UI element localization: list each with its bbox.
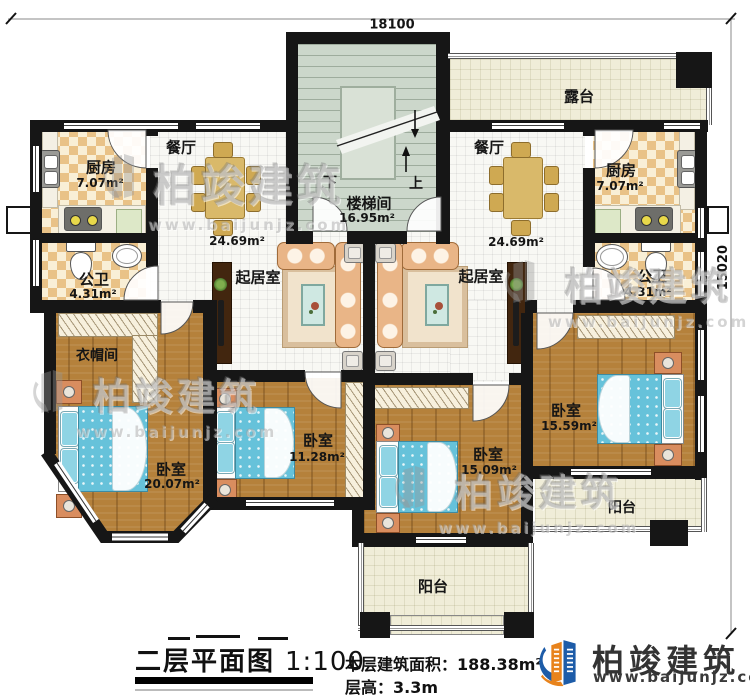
coffee-table-right [425, 284, 449, 326]
room-label-bedroom-master-left: 卧室 [156, 463, 186, 478]
wall [347, 231, 407, 244]
stair-up-label: 上 [409, 177, 423, 191]
window [571, 468, 651, 476]
room-label-bath-right: 公卫 [637, 270, 667, 285]
chair [511, 220, 531, 236]
room-label-terrace: 露台 [564, 90, 594, 105]
chair [246, 166, 261, 185]
end-table [375, 243, 396, 263]
room-label-bedroom-master-right: 卧室 [551, 404, 581, 419]
room-area-dining-left: 24.69m² [209, 235, 265, 247]
room-area-bath-left: 4.31m² [69, 288, 116, 300]
kitchen-right-stove [635, 207, 673, 231]
coffee-table-left [301, 284, 325, 326]
window [697, 252, 705, 296]
room-label-balcony-center: 阳台 [418, 580, 448, 595]
wall [436, 32, 450, 244]
basin-right [596, 244, 628, 270]
floor-height-text: 层高：3.3m [345, 674, 438, 698]
wall [583, 243, 595, 267]
brand-logo [534, 630, 586, 694]
kitchen-left-sink [40, 150, 60, 188]
room-label-cloakroom: 衣帽间 [76, 349, 118, 363]
room-area-dining-right: 24.69m² [488, 236, 544, 248]
pillow [61, 449, 78, 483]
wall [583, 168, 595, 233]
chair [246, 193, 261, 212]
chair [544, 166, 559, 185]
room-area-bath-right: 4.31m² [624, 286, 671, 298]
wall [573, 300, 707, 313]
wall [363, 373, 473, 385]
nightstand [376, 513, 400, 533]
room-area-kitchen-left: 7.07m² [76, 177, 123, 189]
window [697, 396, 705, 452]
bedroom-master-right-wardrobe [577, 315, 675, 339]
chair [511, 142, 531, 158]
wall [193, 300, 217, 313]
bedroom-center-right-wardrobe [373, 387, 469, 409]
title-overline [196, 635, 240, 638]
dining-table-left [205, 157, 245, 219]
room-label-balcony-right: 阳台 [608, 501, 636, 515]
room-label-dining-right: 餐厅 [474, 141, 504, 156]
title-underline-thick [135, 677, 313, 684]
wall [583, 128, 595, 136]
wall [525, 300, 537, 313]
wall-niche-left [6, 206, 32, 234]
room-area-bedroom-master-left: 20.07m² [144, 478, 200, 490]
pillow [664, 379, 681, 408]
nightstand [56, 380, 82, 404]
wall [203, 313, 217, 505]
end-table [344, 243, 365, 263]
pillow [380, 477, 397, 507]
plant-left [214, 278, 227, 291]
chair [213, 142, 233, 158]
kitchen-right-board [595, 209, 621, 234]
nightstand [654, 444, 682, 466]
room-label-bedroom-center-right: 卧室 [473, 448, 503, 463]
wall [286, 32, 450, 44]
terrace-parapet [448, 53, 712, 59]
room-label-kitchen-left: 厨房 [86, 161, 116, 176]
wall [441, 231, 450, 244]
pillow [61, 412, 78, 446]
plan-title-block: 二层平面图1:100 [135, 641, 365, 678]
room-label-living-right: 起居室 [458, 270, 503, 285]
pillow [664, 409, 681, 438]
chair [191, 193, 206, 212]
room-area-kitchen-right: 7.07m² [596, 180, 643, 192]
cloakroom-wardrobe [58, 313, 158, 337]
room-area-bedroom-small-left: 11.28m² [289, 451, 345, 463]
plan-title: 二层平面图 [135, 647, 275, 677]
stair-landing [340, 86, 396, 180]
title-overline [168, 637, 190, 640]
room-label-dining-left: 餐厅 [166, 141, 196, 156]
wall [146, 243, 158, 267]
window [64, 122, 178, 130]
room-label-bath-left: 公卫 [79, 273, 109, 288]
wall-niche-right [707, 206, 729, 234]
blanket [598, 375, 630, 443]
title-underline-thin [135, 689, 313, 691]
tv-left [218, 300, 224, 346]
nightstand [654, 352, 682, 374]
balcony-right-block [650, 520, 688, 546]
nightstand [376, 424, 400, 442]
chair [544, 193, 559, 212]
window [196, 122, 260, 130]
room-area-bedroom-center-right: 15.09m² [461, 464, 517, 476]
end-table [375, 351, 396, 371]
window [246, 499, 334, 507]
window [697, 330, 705, 380]
window [32, 240, 40, 286]
wall [286, 32, 298, 244]
window [492, 122, 564, 130]
window [32, 146, 40, 192]
nightstand [56, 494, 82, 518]
floor-area-text: 本层建筑面积：188.38m² [345, 651, 542, 675]
kitchen-right-sink [677, 150, 697, 188]
wall [521, 313, 533, 547]
pillow [217, 412, 234, 442]
brand-site: www.baijunjz.com [593, 668, 750, 686]
wall [217, 370, 305, 382]
room-label-stair: 楼梯间 [346, 197, 391, 212]
tv-right [513, 300, 519, 346]
wall [146, 168, 158, 233]
room-label-kitchen-right: 厨房 [606, 164, 636, 179]
pillow [217, 443, 234, 473]
kitchen-left-board [116, 209, 142, 234]
room-area-bedroom-master-right: 15.59m² [541, 420, 597, 432]
brand-logo-icon [534, 630, 586, 690]
wall [509, 373, 523, 385]
balcony-center-block [360, 612, 390, 638]
dimension-tick [726, 13, 736, 24]
wall [583, 233, 707, 243]
plant-right [510, 278, 523, 291]
end-table [342, 351, 363, 371]
balcony-center-block [504, 612, 534, 638]
chair [191, 166, 206, 185]
window [697, 208, 705, 238]
stair-down-label: 下 [323, 176, 337, 190]
room-area-stair: 16.95m² [339, 212, 395, 224]
dimension-tick [6, 13, 16, 24]
chair [489, 193, 504, 212]
dim-right-label: 15020 [716, 245, 731, 290]
title-overline [258, 637, 288, 640]
terrace-corner-block [676, 52, 712, 88]
pillow [380, 446, 397, 476]
wall [44, 312, 56, 454]
sofa-right-top [401, 242, 459, 270]
sofa-left-top [277, 242, 335, 270]
room-label-bedroom-small-left: 卧室 [303, 434, 333, 449]
chair [489, 166, 504, 185]
window [416, 536, 466, 544]
wall [30, 233, 158, 243]
dining-table-right [503, 157, 543, 219]
wall [286, 231, 313, 244]
room-label-living-left: 起居室 [235, 271, 280, 286]
window [664, 122, 700, 130]
balcony-right-rail [701, 478, 707, 532]
dim-top-label: 18100 [369, 19, 414, 32]
basin-left [112, 244, 142, 268]
kitchen-left-stove [64, 207, 102, 231]
wall [341, 370, 363, 382]
cloakroom-wardrobe-side [132, 335, 158, 403]
floor-plan-page: 18100 15020 露台 餐厅 24.69m² 餐厅 24.69m² 厨房 … [0, 0, 750, 699]
